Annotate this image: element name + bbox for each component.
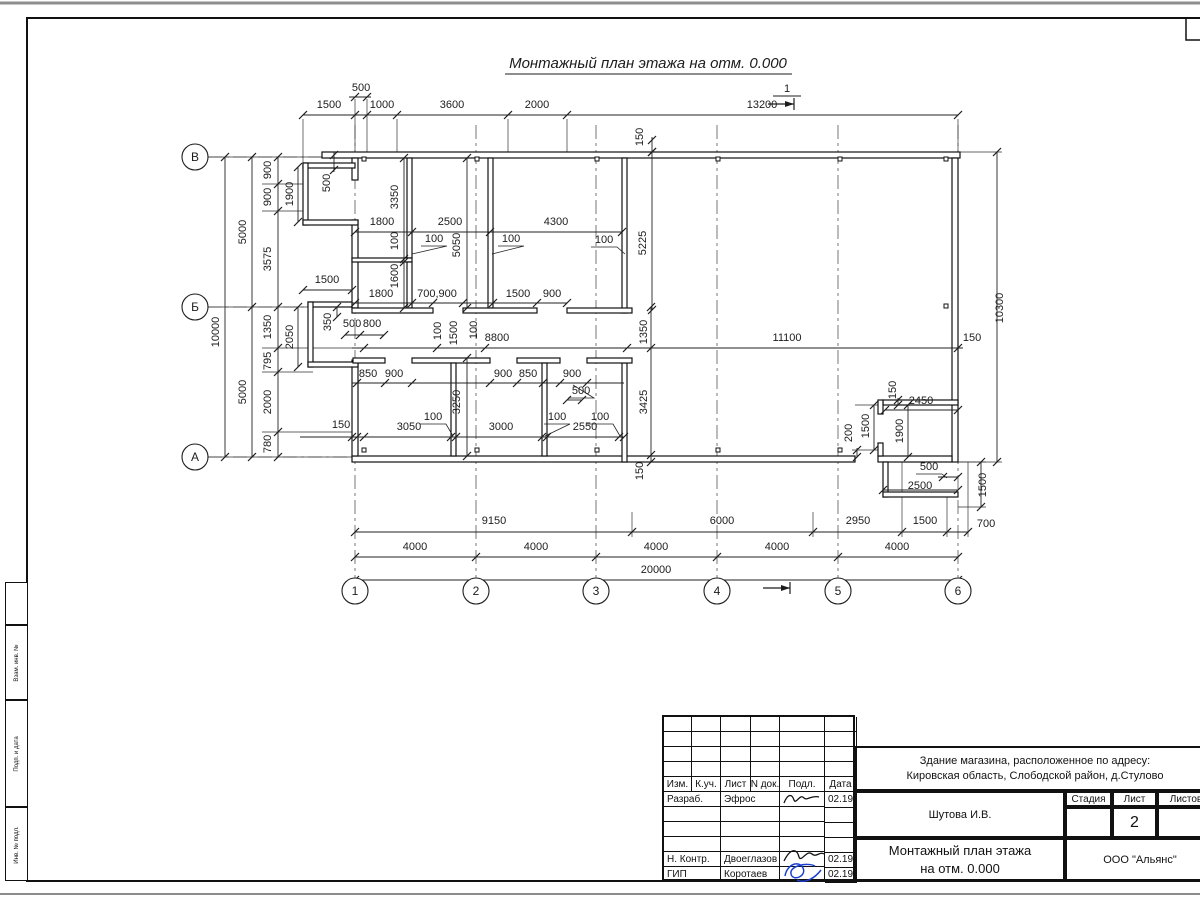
- dim-label: 1500: [315, 274, 339, 286]
- dim-label: 500: [920, 461, 938, 473]
- change-log-cell: [780, 762, 825, 777]
- drawing-title: Монтажный план этажа на отм. 0.000: [509, 55, 787, 72]
- sheets-label: Листов: [1170, 794, 1200, 805]
- dim-label: 10000: [210, 317, 222, 348]
- dim-label: 100: [389, 232, 401, 250]
- leader-line: [420, 424, 453, 436]
- column-marks: [362, 157, 948, 452]
- wall-segment: [542, 363, 547, 456]
- dim-label: 150: [887, 381, 899, 399]
- dim-label: 2500: [908, 480, 932, 492]
- dim-label: 13200: [747, 99, 778, 111]
- axis-bubble: В: [182, 144, 208, 170]
- section-mark-bottom: [763, 582, 790, 594]
- change-log-cell: [721, 747, 751, 762]
- sheet-label: Лист: [1124, 794, 1146, 805]
- dim-label: 2000: [525, 99, 549, 111]
- wall-segment: [622, 363, 627, 462]
- change-log-cell: [692, 747, 721, 762]
- stage-value: [1065, 807, 1112, 838]
- change-log-cell: [692, 762, 721, 777]
- wall-segment: [308, 362, 358, 367]
- dim-label: 1900: [284, 182, 296, 206]
- dim-label: 9150: [482, 515, 506, 527]
- dim-label: 900: [385, 368, 403, 380]
- project-line: Здание магазина, расположенное по адресу…: [920, 754, 1151, 768]
- dim-label: 500: [572, 385, 590, 397]
- axis-bubble-label: 6: [955, 584, 962, 598]
- dim-label: 3350: [389, 185, 401, 209]
- wall-segment: [463, 308, 537, 313]
- side-cell-label: Взам. инв. №: [14, 628, 20, 698]
- dim-label: 150: [332, 419, 350, 431]
- dim-label: 8800: [485, 332, 509, 344]
- wall-segment: [303, 163, 355, 168]
- change-log-cell: [751, 747, 780, 762]
- dim-label: 900: [262, 161, 274, 179]
- dim-label: 3425: [638, 390, 650, 414]
- tb-role-cell: Разраб.: [664, 792, 721, 807]
- dim-label: 900: [543, 288, 561, 300]
- tb-name-cell: Эфрос: [721, 792, 780, 807]
- dim-label: 1500: [913, 515, 937, 527]
- column-mark: [475, 157, 479, 161]
- doc-title-line: на отм. 0.000: [920, 860, 1000, 878]
- change-log-cell: [664, 717, 692, 732]
- dim-label: 500: [343, 318, 361, 330]
- titleblock-project: Здание магазина, расположенное по адресу…: [855, 746, 1200, 791]
- column-mark: [838, 157, 842, 161]
- dim-label: 100: [424, 411, 442, 423]
- dim-label: 1500: [506, 288, 530, 300]
- sheet-number-value: 2: [1130, 814, 1139, 832]
- leader-line: [492, 246, 524, 254]
- change-log-cell: [751, 717, 780, 732]
- dim-label: 4000: [644, 541, 668, 553]
- axis-bubble-label: 1: [352, 584, 359, 598]
- doc-title-line: Монтажный план этажа: [889, 842, 1031, 860]
- change-log-cell: [664, 732, 692, 747]
- dim-label: 11100: [773, 332, 802, 344]
- change-log-cell: [721, 732, 751, 747]
- signature: [780, 791, 824, 807]
- tb-name-cell: Коротаев: [721, 867, 780, 882]
- dim-label: 3000: [489, 421, 513, 433]
- dim-label: 100: [432, 322, 444, 340]
- axis-bubble-label: 3: [593, 584, 600, 598]
- wall-segment: [952, 158, 958, 462]
- tb-date-cell: [825, 822, 857, 838]
- wall-segment: [412, 358, 490, 363]
- tb-signature-cell: [780, 807, 825, 822]
- dim-label: 900: [494, 368, 512, 380]
- axis-bubble: 3: [583, 578, 609, 604]
- tb-name-cell: [721, 837, 780, 852]
- dim-label: 2000: [262, 390, 274, 414]
- section-mark-label: 1: [784, 83, 790, 95]
- axis-bubble-label: 4: [714, 584, 721, 598]
- dim-label: 4000: [524, 541, 548, 553]
- tb-header-cell: Дата: [825, 777, 857, 792]
- tb-date-cell: [825, 837, 857, 853]
- change-log-cell: [825, 732, 857, 747]
- project-line: Кировская область, Слободской район, д.С…: [906, 769, 1163, 783]
- tb-header-cell: Изм.: [664, 777, 692, 792]
- walls: [303, 152, 960, 497]
- wall-segment: [878, 443, 883, 456]
- column-mark: [716, 448, 720, 452]
- dim-label: 150: [963, 332, 981, 344]
- tb-name-cell: [721, 807, 780, 822]
- change-log-cell: [721, 762, 751, 777]
- column-mark: [362, 157, 366, 161]
- dim-label: 2050: [284, 325, 296, 349]
- dim-label: 100: [468, 321, 480, 339]
- change-log-cell: [825, 717, 857, 732]
- wall-segment: [352, 360, 358, 456]
- sheet-header: Лист: [1112, 791, 1157, 807]
- dim-label: 1800: [369, 288, 393, 300]
- tb-date-cell: 02.19: [825, 852, 857, 868]
- dim-label: 850: [519, 368, 537, 380]
- wall-segment: [353, 358, 385, 363]
- leader-line: [544, 424, 570, 436]
- wall-segment: [517, 358, 560, 363]
- side-cell-inv: Инв. № подл.: [5, 807, 28, 881]
- change-log-cell: [780, 747, 825, 762]
- tb-date-cell: 02.19: [825, 867, 857, 883]
- dimension-lines: [221, 93, 1001, 584]
- dim-label: 2950: [846, 515, 870, 527]
- side-cell-vzam: Взам. инв. №: [5, 625, 28, 700]
- dim-label: 10300: [994, 293, 1006, 324]
- wall-segment: [567, 308, 632, 313]
- dim-label: 700: [977, 518, 995, 530]
- tb-date-cell: [825, 807, 857, 823]
- dim-label: 5000: [237, 380, 249, 404]
- dim-label: 3600: [440, 99, 464, 111]
- tb-header-cell: N док.: [751, 777, 780, 792]
- drawing-sheet: Монтажный план этажа на отм. 0.000 50015…: [0, 0, 1200, 900]
- column-mark: [944, 157, 948, 161]
- wall-segment: [407, 158, 412, 258]
- tb-name-cell: Двоеглазов: [721, 852, 780, 867]
- dim-label: 350: [322, 313, 334, 331]
- dim-label: 100: [425, 233, 443, 245]
- dim-label: 900: [563, 368, 581, 380]
- dim-label: 1900: [894, 419, 906, 443]
- change-log-cell: [664, 762, 692, 777]
- dim-label: 6000: [710, 515, 734, 527]
- tb-role-cell: ГИП: [664, 867, 721, 882]
- column-mark: [595, 448, 599, 452]
- axis-bubble: 6: [945, 578, 971, 604]
- axis-bubble: 5: [825, 578, 851, 604]
- axis-bubble: 2: [463, 578, 489, 604]
- tb-date-cell: 02.19: [825, 792, 857, 808]
- tb-role-cell: [664, 822, 721, 837]
- stage-header: Стадия: [1065, 791, 1112, 807]
- change-log-cell: [721, 717, 751, 732]
- dim-label: 100: [595, 234, 613, 246]
- dim-label: 200: [843, 424, 855, 442]
- axis-bubble: А: [182, 444, 208, 470]
- wall-segment: [352, 308, 433, 313]
- dim-label: 3050: [397, 421, 421, 433]
- dim-label: 1500: [448, 321, 460, 345]
- wall-segment: [303, 220, 358, 225]
- dim-label: 100: [591, 411, 609, 423]
- side-cell-label: Инв. № подл.: [14, 810, 20, 880]
- tb-signature-cell: [780, 822, 825, 837]
- dim-label: 1350: [262, 315, 274, 339]
- wall-segment: [878, 400, 883, 414]
- tb-header-cell: Подл.: [780, 777, 825, 792]
- axis-bubble-label: А: [191, 450, 199, 464]
- side-cell-label: Подп. и дата: [14, 719, 20, 789]
- dim-label: 500: [321, 174, 333, 192]
- wall-segment: [622, 158, 627, 313]
- dim-label: 1500: [317, 99, 341, 111]
- wall-segment: [352, 220, 358, 308]
- wall-segment: [878, 456, 952, 462]
- dim-label: 4000: [885, 541, 909, 553]
- change-log-cell: [751, 732, 780, 747]
- change-log-cell: [751, 762, 780, 777]
- sheet-number: 2: [1112, 807, 1157, 838]
- axis-bubble: Б: [182, 294, 208, 320]
- author-name: Шутова И.В.: [929, 809, 992, 821]
- change-log-cell: [692, 717, 721, 732]
- wall-segment: [322, 152, 960, 158]
- change-log-cell: [780, 717, 825, 732]
- stage-label: Стадия: [1071, 794, 1105, 805]
- dim-label: 150: [634, 128, 646, 146]
- column-mark: [838, 448, 842, 452]
- dim-label: 4000: [403, 541, 427, 553]
- column-mark: [362, 448, 366, 452]
- dim-label: 1000: [370, 99, 394, 111]
- dim-label: 100: [502, 233, 520, 245]
- change-log-cell: [825, 747, 857, 762]
- wall-segment: [308, 302, 352, 307]
- column-mark: [944, 304, 948, 308]
- dim-label: 700,900: [417, 288, 457, 300]
- dim-label: 500: [352, 82, 370, 94]
- dim-label: 1500: [977, 473, 989, 497]
- titleblock-company: ООО "Альянс": [1065, 838, 1200, 881]
- wall-segment: [883, 492, 958, 497]
- axis-bubble-label: 2: [473, 584, 480, 598]
- axis-bubble: 4: [704, 578, 730, 604]
- tb-header-cell: К.уч.: [692, 777, 721, 792]
- sheets-value: [1157, 807, 1200, 838]
- dim-label: 5050: [451, 233, 463, 257]
- tb-header-cell: Лист: [721, 777, 751, 792]
- dim-label: 150: [634, 462, 646, 480]
- dim-label: 780: [262, 435, 274, 453]
- wall-segment: [407, 262, 412, 308]
- dim-label: 3575: [262, 247, 274, 271]
- dim-label: 5000: [237, 220, 249, 244]
- dim-label: 100: [548, 411, 566, 423]
- wall-segment: [587, 358, 632, 363]
- dim-label: 900: [262, 188, 274, 206]
- dim-label: 1500: [860, 414, 872, 438]
- wall-segment: [308, 302, 313, 367]
- change-log-cell: [825, 762, 857, 777]
- change-log-cell: [664, 747, 692, 762]
- wall-segment: [352, 456, 855, 462]
- axis-bubble: 1: [342, 578, 368, 604]
- frame-corner-box: [1186, 18, 1200, 40]
- change-log-cell: [692, 732, 721, 747]
- leader-line: [412, 246, 447, 254]
- side-cell-podp: Подп. и дата: [5, 700, 28, 807]
- side-cell-empty: [5, 582, 28, 625]
- dim-label: 1600: [389, 264, 401, 288]
- dim-label: 4000: [765, 541, 789, 553]
- section-arrow-icon: [785, 101, 794, 107]
- axis-bubble-label: Б: [191, 300, 199, 314]
- dim-label: 2450: [909, 395, 933, 407]
- column-mark: [475, 448, 479, 452]
- tb-role-cell: Н. Контр.: [664, 852, 721, 867]
- section-arrow-icon: [781, 585, 790, 591]
- sheets-header: Листов: [1157, 791, 1200, 807]
- dim-label: 4300: [544, 216, 568, 228]
- tb-role-cell: [664, 807, 721, 822]
- dim-label: 1350: [638, 320, 650, 344]
- signature-blue: [777, 856, 829, 886]
- change-log-cell: [780, 732, 825, 747]
- axis-bubble-label: В: [191, 150, 199, 164]
- column-mark: [716, 157, 720, 161]
- dim-label: 5225: [637, 231, 649, 255]
- company-name: ООО "Альянс": [1103, 854, 1177, 866]
- titleblock-author: Шутова И.В.: [855, 791, 1065, 838]
- dim-label: 795: [262, 352, 274, 370]
- column-mark: [595, 157, 599, 161]
- dim-label: 2500: [438, 216, 462, 228]
- wall-segment: [352, 158, 358, 180]
- dim-label: 850: [359, 368, 377, 380]
- dim-label: 1800: [370, 216, 394, 228]
- axis-bubble-label: 5: [835, 584, 842, 598]
- dim-label: 20000: [641, 564, 672, 576]
- tb-role-cell: [664, 837, 721, 852]
- dim-label: 3250: [451, 390, 463, 414]
- tb-name-cell: [721, 822, 780, 837]
- dim-label: 800: [363, 318, 381, 330]
- titleblock-doc-title: Монтажный план этажа на отм. 0.000: [855, 838, 1065, 881]
- wall-segment: [303, 163, 308, 225]
